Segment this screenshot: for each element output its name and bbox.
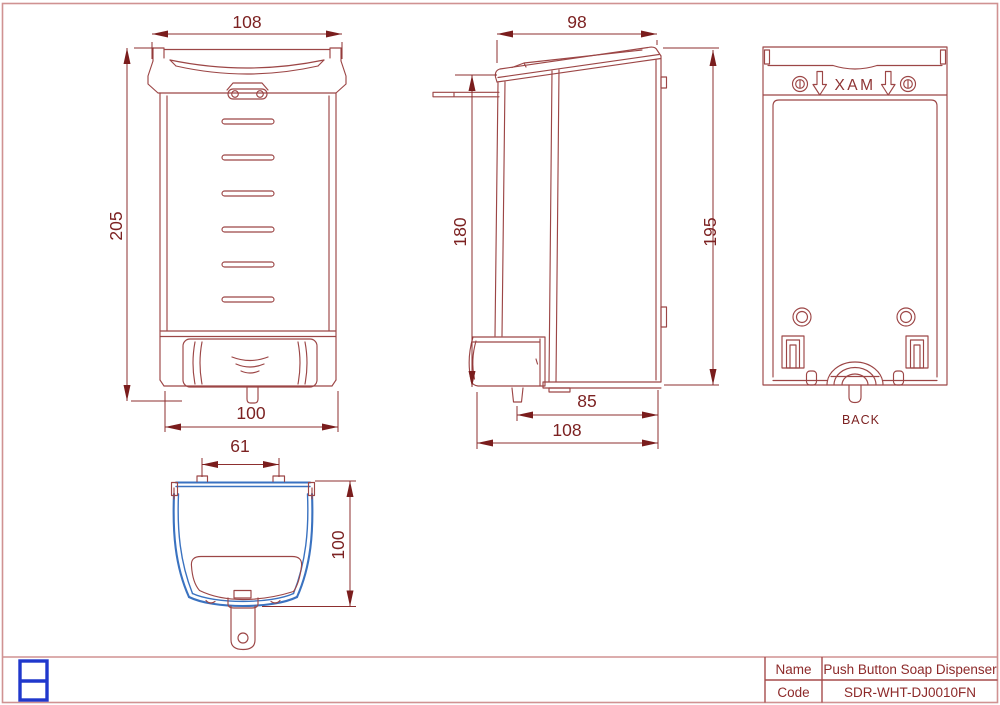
side-dim-depth-total: 108 xyxy=(477,392,658,449)
company-logo xyxy=(20,661,47,700)
page-border xyxy=(3,4,998,703)
technical-drawing-canvas: 108 205 100 xyxy=(0,0,1000,705)
side-mount-tab-bottom xyxy=(661,307,667,327)
back-hole-left xyxy=(793,308,811,326)
back-pump-housing xyxy=(827,362,883,403)
side-dim-height-back-label: 195 xyxy=(700,217,720,246)
front-dim-width-bottom: 100 xyxy=(165,391,338,432)
side-view: 98 180 195 85 108 xyxy=(433,12,720,449)
title-block-name-label: Name xyxy=(775,662,811,677)
side-wall-plate xyxy=(433,92,499,97)
front-vent-slots xyxy=(222,119,274,302)
back-view-caption: BACK xyxy=(842,413,880,427)
page-frame xyxy=(3,4,998,703)
front-nozzle xyxy=(247,387,258,403)
front-view: 108 205 100 xyxy=(106,12,346,432)
drawing-page: 108 205 100 xyxy=(0,0,1000,705)
front-dim-height: 205 xyxy=(106,48,182,401)
back-screw-right xyxy=(901,77,916,92)
side-mount-tab-top xyxy=(661,77,667,88)
bottom-dim-tab-spacing-label: 61 xyxy=(230,436,249,456)
bottom-dim-depth-label: 100 xyxy=(328,530,348,559)
bottom-button-recess xyxy=(191,557,301,600)
side-dim-height-back: 195 xyxy=(663,48,720,385)
front-dim-height-label: 205 xyxy=(106,211,126,240)
back-view: XAM BACK xyxy=(763,47,947,427)
title-block-name-value: Push Button Soap Dispenser xyxy=(823,662,997,677)
front-push-button xyxy=(183,339,317,387)
front-dim-width-bottom-label: 100 xyxy=(236,403,265,423)
side-dim-nozzle-offset-label: 85 xyxy=(577,391,596,411)
side-dim-depth-top: 98 xyxy=(497,12,657,63)
side-dim-height-front: 180 xyxy=(450,75,497,387)
title-block: Name Push Button Soap Dispenser Code SDR… xyxy=(765,657,998,703)
max-fill-arrow-left-icon xyxy=(813,72,827,96)
front-dim-width-top-label: 108 xyxy=(232,12,261,32)
title-block-code-value: SDR-WHT-DJ0010FN xyxy=(844,685,976,700)
side-dim-height-front-label: 180 xyxy=(450,217,470,246)
side-dim-nozzle-offset: 85 xyxy=(517,390,658,449)
bottom-view: 61 100 xyxy=(172,436,357,650)
front-dim-width-top: 108 xyxy=(152,12,342,59)
back-hole-right xyxy=(897,308,915,326)
back-max-mirrored-label: XAM xyxy=(834,77,875,94)
side-nozzle xyxy=(512,388,523,402)
max-fill-arrow-right-icon xyxy=(882,72,896,96)
side-push-button xyxy=(469,337,545,386)
back-screw-left xyxy=(793,77,808,92)
side-dim-depth-total-label: 108 xyxy=(552,420,581,440)
title-block-code-label: Code xyxy=(777,685,809,700)
back-bracket-right xyxy=(906,336,928,368)
side-dim-depth-top-label: 98 xyxy=(567,12,586,32)
bottom-dim-tab-spacing: 61 xyxy=(202,436,279,477)
back-bracket-left xyxy=(782,336,804,368)
bottom-dim-depth: 100 xyxy=(262,481,356,607)
